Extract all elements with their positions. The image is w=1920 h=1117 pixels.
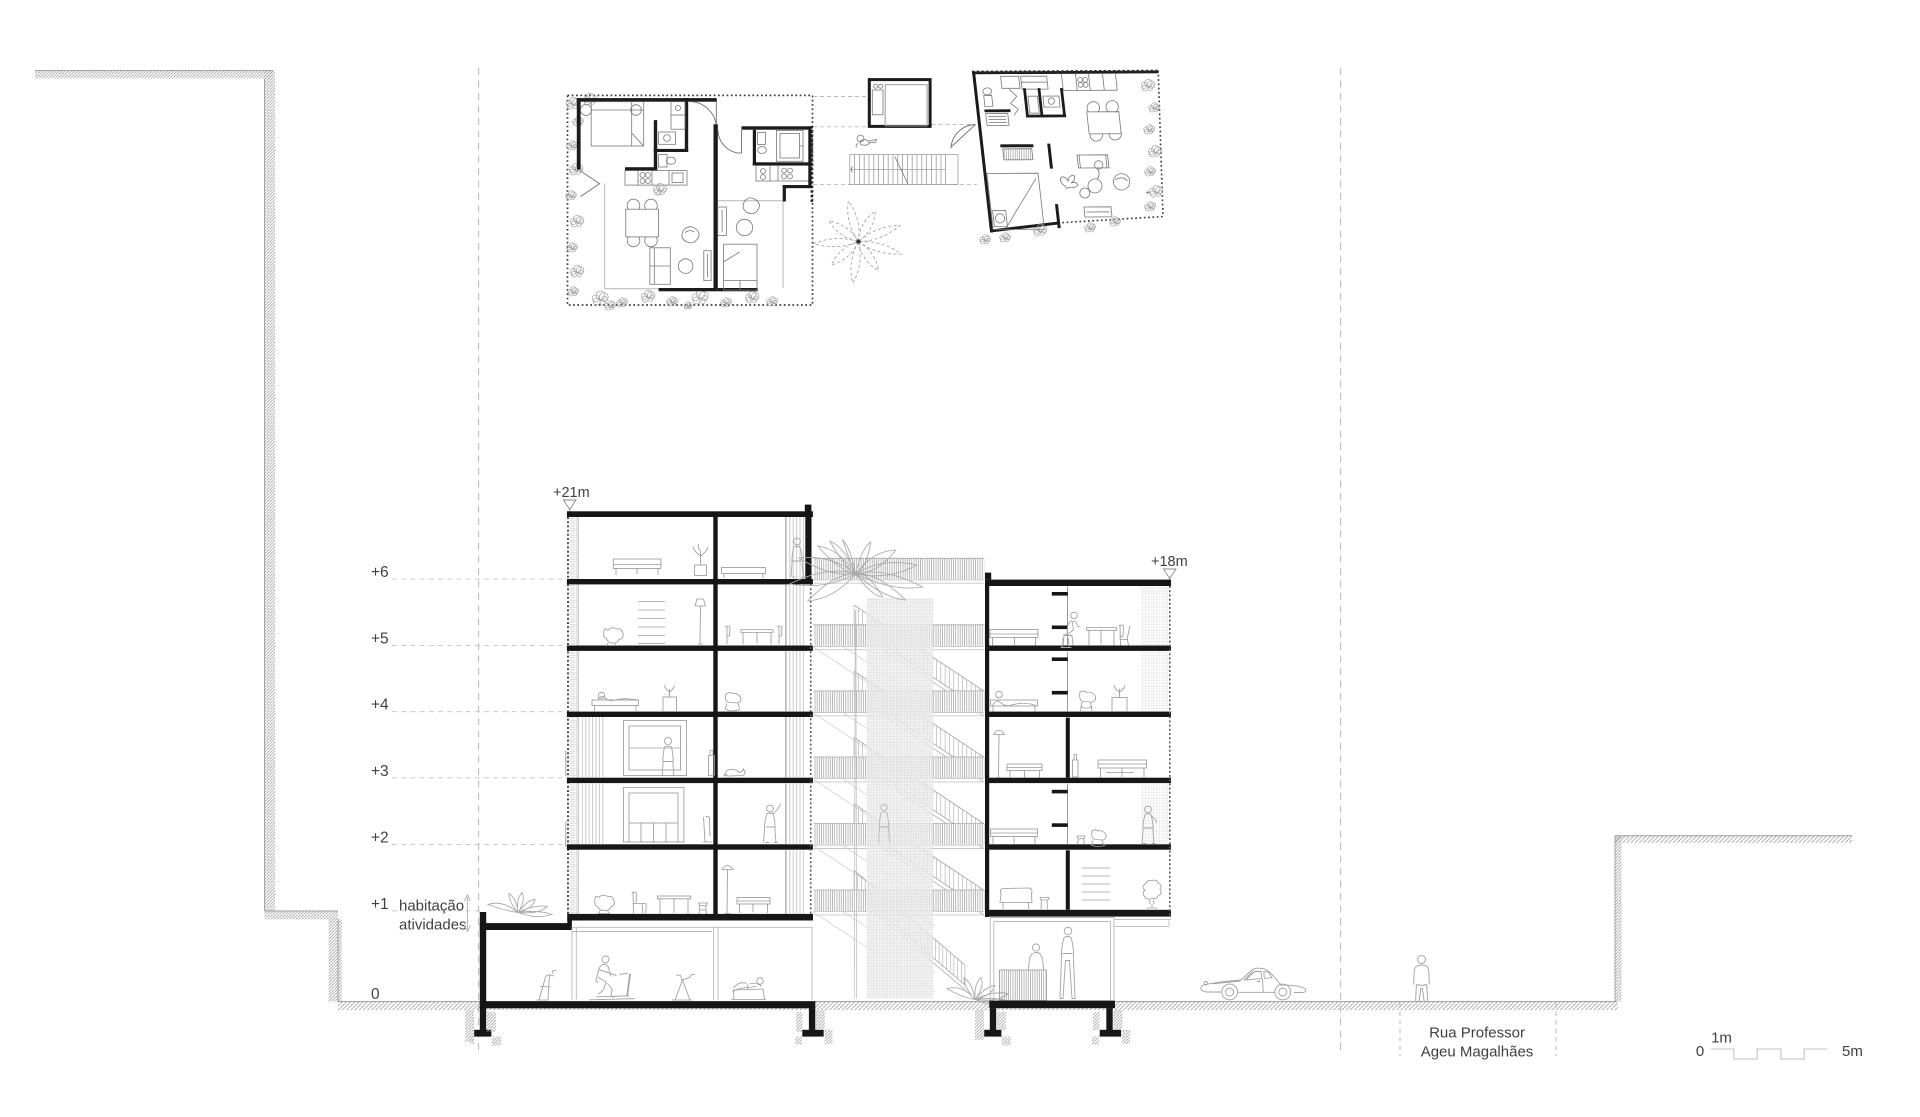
svg-text:+5: +5 bbox=[371, 631, 389, 648]
svg-text:Rua Professor: Rua Professor bbox=[1429, 1025, 1525, 1042]
svg-text:+3: +3 bbox=[371, 763, 389, 780]
svg-text:habitação: habitação bbox=[399, 898, 464, 915]
svg-text:+1: +1 bbox=[371, 896, 389, 913]
svg-text:+6: +6 bbox=[371, 564, 389, 581]
svg-text:1m: 1m bbox=[1711, 1030, 1732, 1047]
svg-text:0: 0 bbox=[1696, 1043, 1704, 1060]
svg-text:+2: +2 bbox=[371, 829, 389, 846]
svg-text:atividades: atividades bbox=[399, 917, 467, 934]
svg-text:5m: 5m bbox=[1842, 1043, 1863, 1060]
svg-text:0: 0 bbox=[371, 986, 380, 1003]
svg-text:+4: +4 bbox=[371, 697, 389, 714]
svg-text:+21m: +21m bbox=[553, 485, 590, 501]
svg-text:+18m: +18m bbox=[1151, 554, 1188, 570]
svg-text:Ageu Magalhães: Ageu Magalhães bbox=[1421, 1044, 1534, 1061]
